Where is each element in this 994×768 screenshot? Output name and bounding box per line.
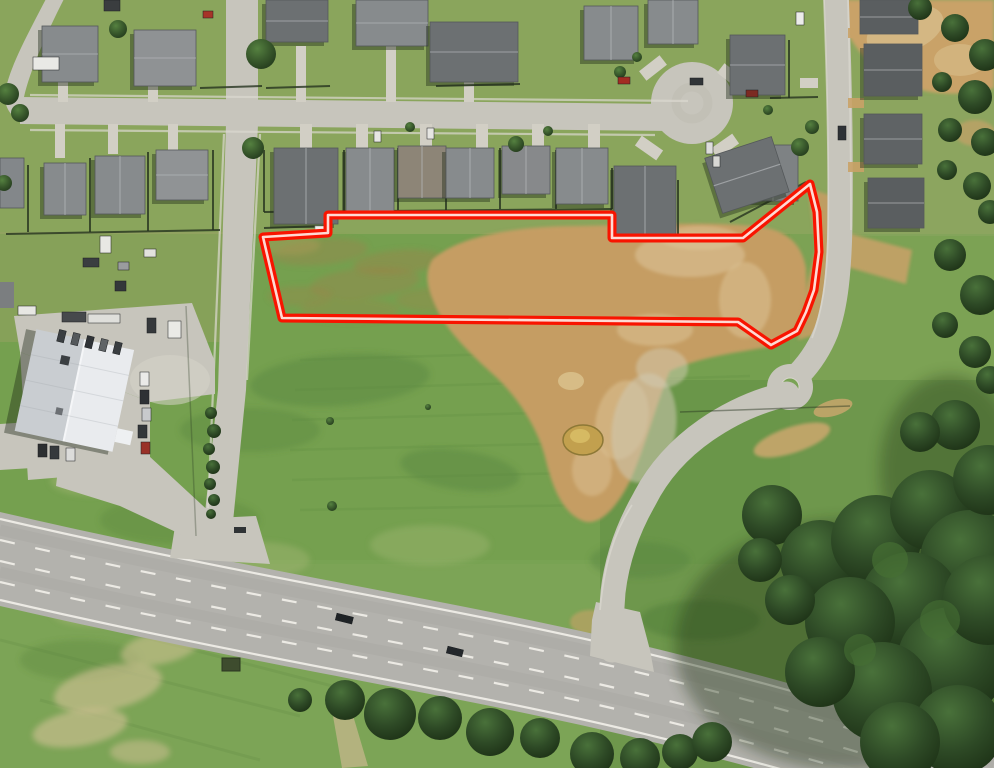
roof-vent xyxy=(55,407,63,415)
house xyxy=(152,150,208,204)
gravel-wash xyxy=(636,348,688,388)
house-under-construction xyxy=(860,114,922,168)
semi-trailer xyxy=(88,314,120,323)
car xyxy=(104,0,120,11)
house xyxy=(726,35,785,99)
car xyxy=(838,126,846,140)
house xyxy=(40,163,86,219)
car xyxy=(713,156,720,167)
house-under-construction xyxy=(860,44,922,100)
car xyxy=(706,142,713,154)
semi-trailer xyxy=(62,312,86,322)
house xyxy=(394,146,446,202)
house xyxy=(130,30,196,90)
house xyxy=(442,148,494,202)
satellite-image-viewport xyxy=(0,0,994,768)
rv-trailer xyxy=(33,57,59,70)
house xyxy=(552,148,608,208)
house-under-construction xyxy=(864,178,924,232)
car xyxy=(374,131,381,142)
shed xyxy=(168,321,181,338)
car xyxy=(203,11,213,18)
house xyxy=(610,166,676,238)
house xyxy=(38,26,98,86)
muddy-pond-highlight xyxy=(570,429,590,443)
house xyxy=(580,6,638,64)
truck xyxy=(18,306,36,315)
house xyxy=(644,0,698,48)
car xyxy=(427,128,434,139)
car xyxy=(618,77,630,84)
car xyxy=(690,78,703,85)
roof-vent xyxy=(60,355,71,366)
house xyxy=(426,22,518,86)
car xyxy=(147,318,156,333)
dry-pond-spot xyxy=(558,372,584,390)
house xyxy=(262,0,328,46)
roadside-sign xyxy=(234,527,246,533)
utility-equipment xyxy=(222,658,240,671)
car xyxy=(746,90,758,97)
house xyxy=(352,0,428,50)
house xyxy=(91,156,145,218)
car xyxy=(796,12,804,25)
house xyxy=(498,146,550,198)
aerial-photo xyxy=(0,0,994,768)
house xyxy=(342,148,394,216)
building-partial-left-edge xyxy=(0,282,14,308)
